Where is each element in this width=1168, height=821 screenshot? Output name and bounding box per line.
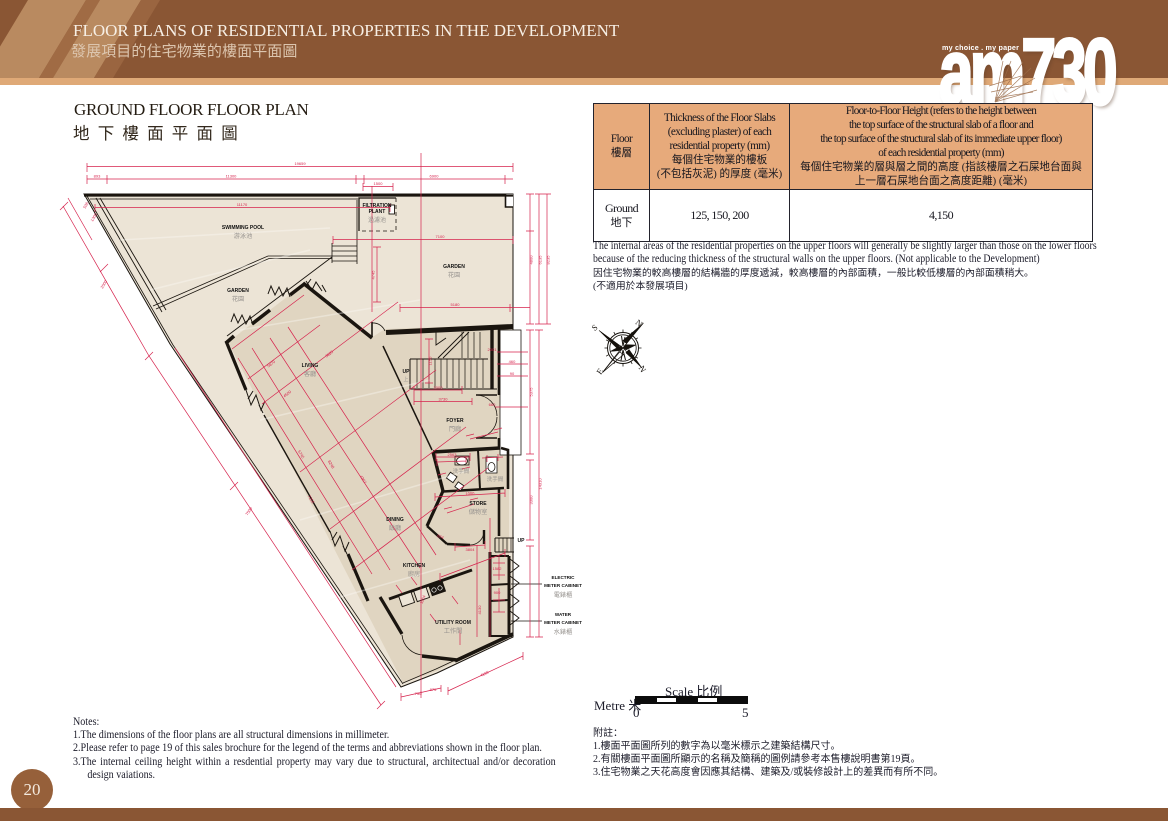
svg-text:N: N [633, 317, 644, 329]
svg-text:14310: 14310 [538, 478, 543, 490]
svg-text:PLANT: PLANT [369, 209, 386, 215]
svg-text:8235: 8235 [546, 255, 551, 265]
svg-text:730: 730 [415, 691, 422, 696]
svg-text:660: 660 [489, 402, 496, 407]
svg-text:2563: 2563 [448, 452, 458, 457]
svg-text:19659: 19659 [294, 161, 306, 166]
svg-text:METER CABINET: METER CABINET [544, 620, 582, 625]
svg-text:N: N [637, 364, 649, 374]
svg-text:893: 893 [94, 174, 101, 179]
svg-text:S: S [590, 322, 600, 333]
svg-text:2500: 2500 [99, 278, 108, 289]
svg-text:花園: 花園 [448, 271, 460, 279]
svg-text:電錶櫃: 電錶櫃 [554, 591, 573, 599]
svg-text:洗手間: 洗手間 [487, 475, 504, 483]
svg-text:儲物室: 儲物室 [469, 508, 488, 516]
svg-text:UP: UP [518, 538, 526, 544]
svg-text:洗手間: 洗手間 [453, 467, 470, 475]
svg-text:上: 上 [403, 376, 408, 383]
svg-text:花園: 花園 [232, 295, 244, 303]
svg-text:游泳池: 游泳池 [234, 232, 253, 240]
svg-text:KITCHEN: KITCHEN [403, 563, 426, 569]
svg-text:STORE: STORE [469, 501, 487, 507]
svg-text:SWIMMING POOL: SWIMMING POOL [222, 225, 264, 231]
svg-text:METER CABINET: METER CABINET [544, 583, 582, 588]
svg-text:460: 460 [509, 359, 516, 364]
svg-text:UTILITY ROOM: UTILITY ROOM [435, 620, 471, 626]
svg-text:5375: 5375 [529, 387, 534, 397]
svg-text:4130: 4130 [477, 605, 482, 615]
svg-text:DINING: DINING [386, 517, 404, 523]
svg-text:UP: UP [403, 369, 411, 375]
svg-text:90: 90 [510, 371, 515, 376]
svg-text:E: E [594, 366, 605, 376]
svg-text:FOYER: FOYER [446, 418, 464, 424]
svg-text:7100: 7100 [436, 234, 446, 239]
svg-text:3804: 3804 [466, 547, 476, 552]
svg-text:過濾池: 過濾池 [368, 216, 386, 224]
svg-text:5180: 5180 [451, 302, 461, 307]
svg-text:3300: 3300 [529, 495, 534, 505]
svg-text:工作間: 工作間 [444, 627, 463, 635]
svg-text:1150: 1150 [428, 356, 433, 365]
svg-text:1582: 1582 [493, 566, 503, 571]
svg-text:900: 900 [494, 590, 501, 595]
svg-text:水錶櫃: 水錶櫃 [554, 628, 573, 636]
svg-text:6900: 6900 [430, 174, 440, 179]
svg-text:4745: 4745 [371, 270, 376, 280]
svg-text:1000: 1000 [465, 491, 475, 496]
svg-text:875: 875 [430, 687, 437, 692]
svg-text:1500: 1500 [374, 181, 384, 186]
svg-text:11170: 11170 [237, 202, 248, 207]
svg-text:LIVING: LIVING [302, 363, 319, 369]
svg-text:11300: 11300 [226, 174, 238, 179]
svg-text:3730: 3730 [439, 397, 449, 402]
svg-text:2001: 2001 [488, 347, 498, 352]
svg-text:客廳: 客廳 [304, 370, 316, 378]
svg-text:GARDEN: GARDEN [443, 264, 465, 270]
svg-text:2000: 2000 [434, 385, 444, 390]
svg-text:6135: 6135 [538, 255, 543, 265]
svg-text:4800: 4800 [529, 255, 534, 265]
svg-text:門廊: 門廊 [449, 425, 461, 433]
svg-text:4100: 4100 [479, 669, 490, 678]
svg-text:GARDEN: GARDEN [227, 288, 249, 294]
svg-text:廚房: 廚房 [408, 570, 420, 578]
svg-text:WATER: WATER [555, 612, 572, 617]
svg-text:ELECTRIC: ELECTRIC [552, 575, 576, 580]
svg-text:飯廳: 飯廳 [389, 524, 401, 532]
